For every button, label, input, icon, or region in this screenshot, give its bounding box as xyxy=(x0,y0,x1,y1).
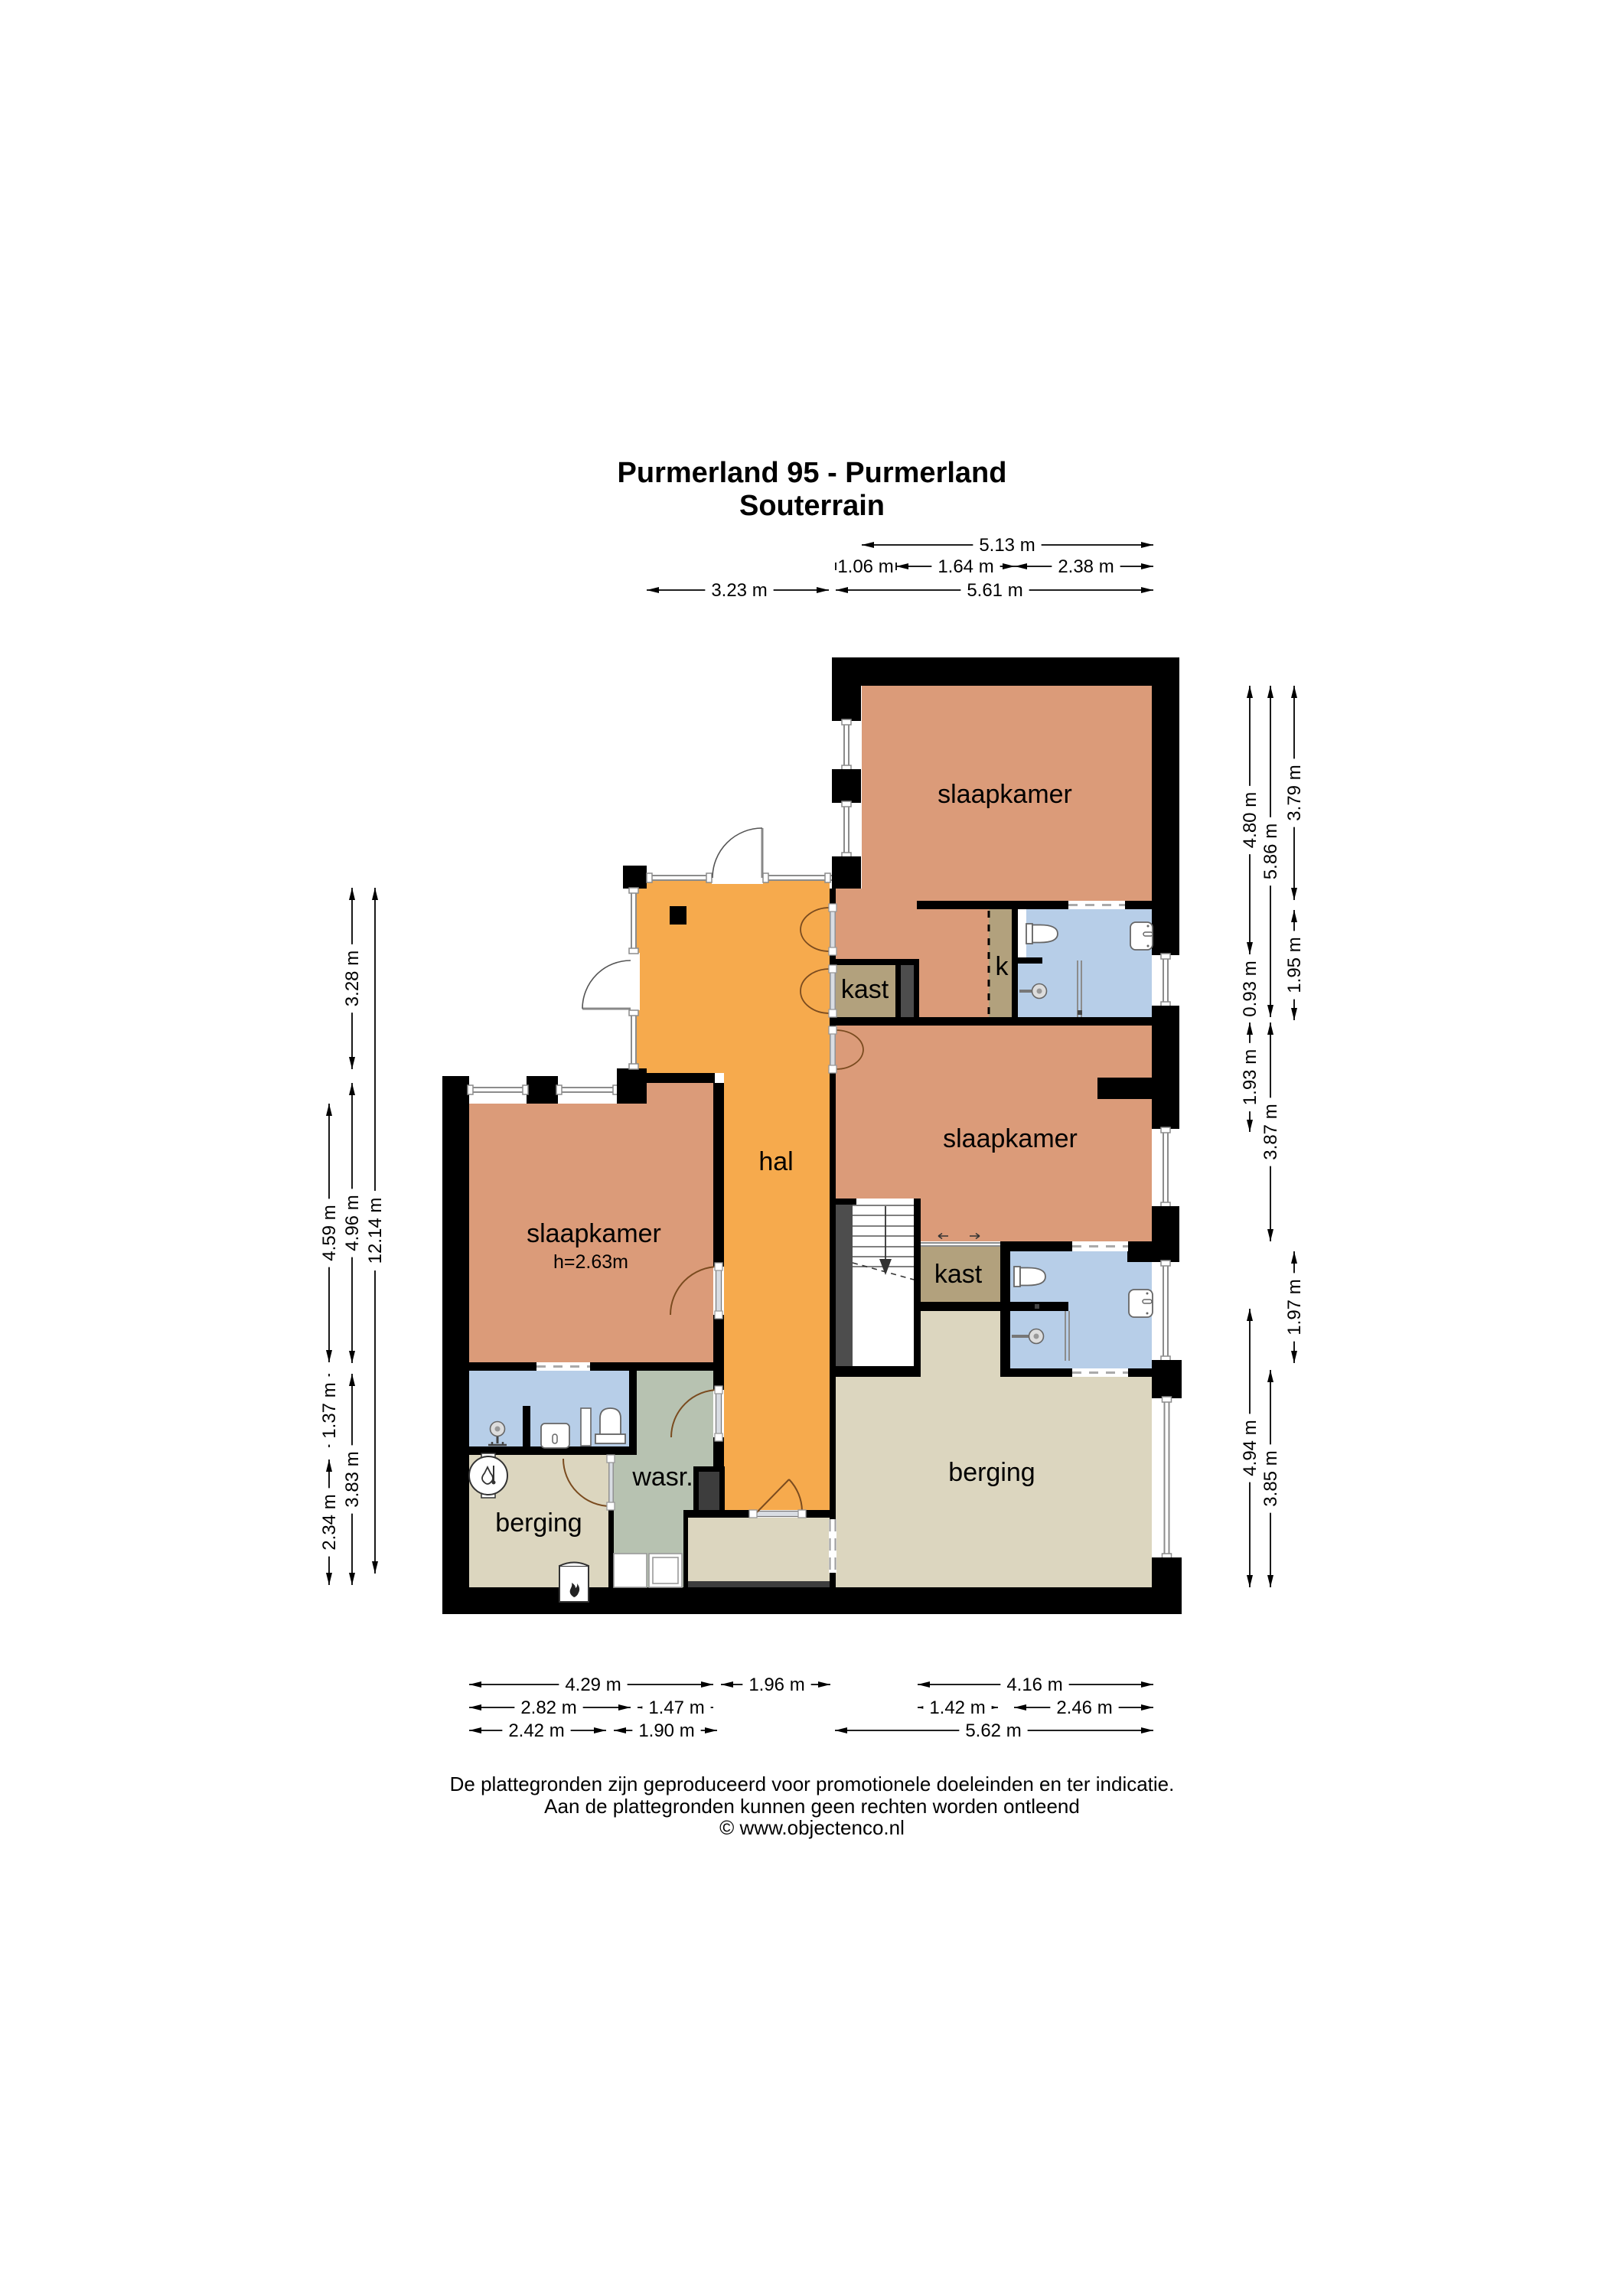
svg-text:2.34 m: 2.34 m xyxy=(319,1494,340,1550)
svg-text:1.96 m: 1.96 m xyxy=(748,1675,804,1695)
svg-text:wasr.: wasr. xyxy=(631,1463,693,1492)
svg-text:1.42 m: 1.42 m xyxy=(929,1698,985,1718)
svg-text:5.62 m: 5.62 m xyxy=(965,1720,1021,1741)
svg-text:12.14 m: 12.14 m xyxy=(365,1198,386,1264)
svg-text:Aan de plattegronden kunnen ge: Aan de plattegronden kunnen geen rechten… xyxy=(544,1795,1080,1818)
svg-text:4.96 m: 4.96 m xyxy=(342,1195,363,1251)
svg-text:berging: berging xyxy=(948,1458,1035,1487)
svg-text:2.82 m: 2.82 m xyxy=(520,1698,576,1718)
svg-text:1.06 m: 1.06 m xyxy=(837,556,893,577)
svg-text:k: k xyxy=(996,952,1009,981)
svg-text:5.86 m: 5.86 m xyxy=(1260,823,1281,879)
svg-text:3.23 m: 3.23 m xyxy=(711,580,767,601)
svg-text:4.59 m: 4.59 m xyxy=(319,1205,340,1261)
svg-text:Souterrain: Souterrain xyxy=(739,490,885,522)
svg-text:4.80 m: 4.80 m xyxy=(1240,792,1260,848)
svg-text:De plattegronden zijn geproduc: De plattegronden zijn geproduceerd voor … xyxy=(450,1773,1175,1795)
svg-text:slaapkamer: slaapkamer xyxy=(943,1124,1078,1153)
svg-text:5.13 m: 5.13 m xyxy=(979,535,1035,556)
svg-text:hal: hal xyxy=(758,1147,793,1176)
svg-text:1.37 m: 1.37 m xyxy=(319,1382,340,1438)
svg-text:2.46 m: 2.46 m xyxy=(1056,1698,1112,1718)
svg-text:1.93 m: 1.93 m xyxy=(1240,1049,1260,1105)
svg-text:1.90 m: 1.90 m xyxy=(638,1720,694,1741)
svg-text:2.42 m: 2.42 m xyxy=(508,1720,564,1741)
svg-text:slaapkamer: slaapkamer xyxy=(938,780,1072,809)
svg-text:3.83 m: 3.83 m xyxy=(342,1451,363,1507)
svg-text:3.87 m: 3.87 m xyxy=(1260,1104,1281,1159)
svg-text:1.64 m: 1.64 m xyxy=(938,556,993,577)
svg-text:© www.objectenco.nl: © www.objectenco.nl xyxy=(719,1816,905,1839)
svg-text:4.94 m: 4.94 m xyxy=(1240,1420,1260,1476)
svg-text:5.61 m: 5.61 m xyxy=(967,580,1022,601)
svg-text:slaapkamer: slaapkamer xyxy=(527,1219,661,1248)
svg-text:3.28 m: 3.28 m xyxy=(342,951,363,1006)
svg-text:berging: berging xyxy=(495,1508,582,1538)
svg-text:Purmerland 95 - Purmerland: Purmerland 95 - Purmerland xyxy=(618,457,1007,489)
svg-text:2.38 m: 2.38 m xyxy=(1058,556,1114,577)
svg-text:1.97 m: 1.97 m xyxy=(1284,1279,1305,1335)
svg-text:4.29 m: 4.29 m xyxy=(565,1675,621,1695)
svg-text:kast: kast xyxy=(934,1260,983,1289)
svg-text:0.93 m: 0.93 m xyxy=(1240,960,1260,1016)
svg-text:1.47 m: 1.47 m xyxy=(648,1698,704,1718)
svg-text:3.79 m: 3.79 m xyxy=(1284,765,1305,820)
svg-text:4.16 m: 4.16 m xyxy=(1006,1675,1062,1695)
svg-text:h=2.63m: h=2.63m xyxy=(553,1251,628,1273)
svg-text:kast: kast xyxy=(841,975,889,1004)
svg-text:3.85 m: 3.85 m xyxy=(1260,1450,1281,1506)
svg-text:1.95 m: 1.95 m xyxy=(1284,937,1305,993)
